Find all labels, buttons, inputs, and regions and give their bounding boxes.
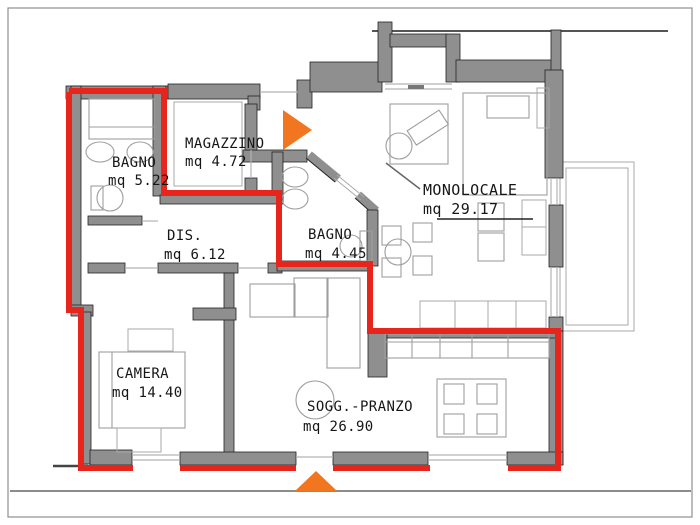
desk bbox=[390, 104, 448, 164]
chair bbox=[413, 223, 432, 242]
pillow bbox=[487, 96, 529, 118]
wall-bottom-c bbox=[333, 452, 428, 465]
balcony bbox=[560, 162, 634, 331]
label-leader-line bbox=[386, 163, 420, 189]
room-area-soggiorno: mq 26.90 bbox=[303, 419, 374, 435]
entrance-arrow-icon bbox=[283, 110, 312, 150]
room-area-dis: mq 6.12 bbox=[164, 247, 226, 263]
entrance-arrow-icon bbox=[295, 471, 337, 491]
chair bbox=[382, 258, 401, 277]
sink bbox=[282, 189, 308, 209]
sofa bbox=[327, 278, 360, 368]
wall-top-center bbox=[310, 62, 382, 92]
wall-niche-left bbox=[378, 22, 392, 82]
wall-bottom-b bbox=[180, 452, 296, 465]
wall-camera-stub bbox=[193, 308, 236, 320]
room-area-bagno2: mq 4.45 bbox=[305, 246, 367, 262]
wall-right-upper bbox=[545, 70, 563, 178]
wall-camera-sogg bbox=[224, 273, 234, 457]
chair bbox=[477, 384, 497, 404]
wall-dis-bottom-b bbox=[158, 263, 238, 273]
room-labels: BAGNO mq 5.22 MAGAZZINO mq 4.72 BAGNO mq… bbox=[108, 136, 533, 435]
floor-plan: BAGNO mq 5.22 MAGAZZINO mq 4.72 BAGNO mq… bbox=[0, 0, 700, 525]
round-table bbox=[385, 239, 411, 265]
wall-topright-connector bbox=[551, 30, 561, 72]
wall-right-pillar bbox=[549, 205, 563, 267]
wall-chamfer-upper bbox=[309, 155, 338, 179]
chair bbox=[477, 414, 497, 434]
chair bbox=[444, 384, 464, 404]
floor-plan-drawing: BAGNO mq 5.22 MAGAZZINO mq 4.72 BAGNO mq… bbox=[0, 0, 700, 525]
wall-left-upper bbox=[71, 86, 81, 312]
niche-window-tick bbox=[408, 85, 424, 89]
room-label-camera: CAMERA bbox=[116, 366, 169, 382]
nightstand bbox=[128, 329, 173, 351]
wall-bagno1-bottom bbox=[88, 216, 142, 225]
sofa bbox=[294, 278, 328, 317]
room-area-bagno1: mq 5.22 bbox=[108, 173, 170, 189]
dining-table bbox=[437, 379, 506, 437]
wall-top-monolocale bbox=[456, 60, 560, 82]
room-label-bagno1: BAGNO bbox=[112, 155, 156, 171]
shower-tub bbox=[89, 99, 154, 139]
wall-niche-top bbox=[390, 34, 448, 47]
room-label-magazzino: MAGAZZINO bbox=[185, 136, 264, 152]
room-area-camera: mq 14.40 bbox=[112, 385, 183, 401]
room-label-bagno2: BAGNO bbox=[308, 227, 352, 243]
chair bbox=[382, 226, 401, 245]
room-label-dis: DIS. bbox=[167, 228, 202, 244]
chair bbox=[444, 414, 464, 434]
wall-magazzino-right-b bbox=[245, 178, 257, 192]
bed-double bbox=[463, 93, 547, 195]
wall-magazzino-bottom bbox=[160, 195, 283, 204]
room-label-monolocale: MONOLOCALE bbox=[423, 181, 517, 199]
wall-sogg-pillar bbox=[368, 331, 387, 377]
kitchen-block bbox=[478, 233, 504, 261]
sofa bbox=[250, 284, 295, 317]
room-area-monolocale: mq 29.17 bbox=[423, 200, 498, 218]
nightstand bbox=[117, 428, 161, 452]
wall-bottom-d bbox=[507, 452, 563, 465]
room-label-soggiorno: SOGG.-PRANZO bbox=[307, 399, 413, 415]
kitchenette bbox=[420, 301, 546, 328]
sink bbox=[282, 167, 308, 187]
wall-dis-bottom-a bbox=[88, 263, 125, 273]
sink bbox=[86, 142, 114, 162]
room-area-magazzino: mq 4.72 bbox=[185, 154, 247, 170]
chair bbox=[413, 256, 432, 275]
desk-item bbox=[407, 110, 448, 145]
wall-top-magazzino bbox=[168, 84, 260, 99]
